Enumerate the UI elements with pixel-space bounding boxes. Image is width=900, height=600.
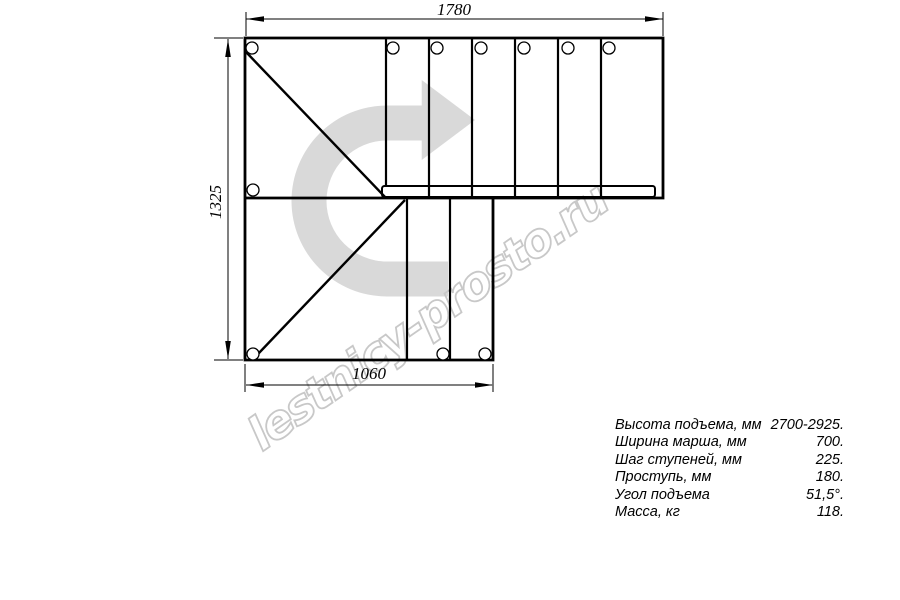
dim-value-top: 1780 xyxy=(437,0,472,19)
mount-hole xyxy=(479,348,491,360)
spec-row: Высота подъема, мм 2700-2925. xyxy=(615,417,844,434)
arrowhead-icon xyxy=(225,341,231,359)
stair-plan-page: lestnicy-prosto.ru xyxy=(0,0,900,600)
mount-hole xyxy=(246,42,258,54)
spec-value: 225. xyxy=(816,452,844,469)
mount-hole xyxy=(247,348,259,360)
arrowhead-icon xyxy=(475,382,493,388)
mount-hole xyxy=(475,42,487,54)
spec-row: Угол подъема 51,5°. xyxy=(615,487,844,504)
dim-value-left: 1325 xyxy=(206,185,225,219)
mount-hole xyxy=(387,42,399,54)
spec-value: 51,5°. xyxy=(806,487,844,504)
arrowhead-icon xyxy=(225,39,231,57)
spec-label: Высота подъема, мм xyxy=(615,417,762,434)
arrowhead-icon xyxy=(246,382,264,388)
mount-hole xyxy=(437,348,449,360)
spec-row: Шаг ступеней, мм 225. xyxy=(615,452,844,469)
spec-label: Проступь, мм xyxy=(615,469,711,486)
mount-hole xyxy=(247,184,259,196)
dim-value-bottom: 1060 xyxy=(352,364,387,383)
mount-hole xyxy=(603,42,615,54)
direction-arrow-icon xyxy=(292,80,476,297)
spec-label: Шаг ступеней, мм xyxy=(615,452,742,469)
spec-row: Проступь, мм 180. xyxy=(615,469,844,486)
spec-value: 118. xyxy=(817,504,844,521)
spec-value: 180. xyxy=(816,469,844,486)
arrowhead-icon xyxy=(246,16,264,22)
mount-hole xyxy=(562,42,574,54)
stringer-strip xyxy=(382,186,655,197)
spec-row: Ширина марша, мм 700. xyxy=(615,434,844,451)
spec-label: Угол подъема xyxy=(615,487,710,504)
spec-value: 2700-2925. xyxy=(771,417,844,434)
mount-hole xyxy=(431,42,443,54)
spec-label: Масса, кг xyxy=(615,504,680,521)
specs-table: Высота подъема, мм 2700-2925. Ширина мар… xyxy=(615,417,844,521)
mount-hole xyxy=(518,42,530,54)
spec-value: 700. xyxy=(816,434,844,451)
spec-label: Ширина марша, мм xyxy=(615,434,747,451)
spec-row: Масса, кг 118. xyxy=(615,504,844,521)
arrowhead-icon xyxy=(645,16,663,22)
